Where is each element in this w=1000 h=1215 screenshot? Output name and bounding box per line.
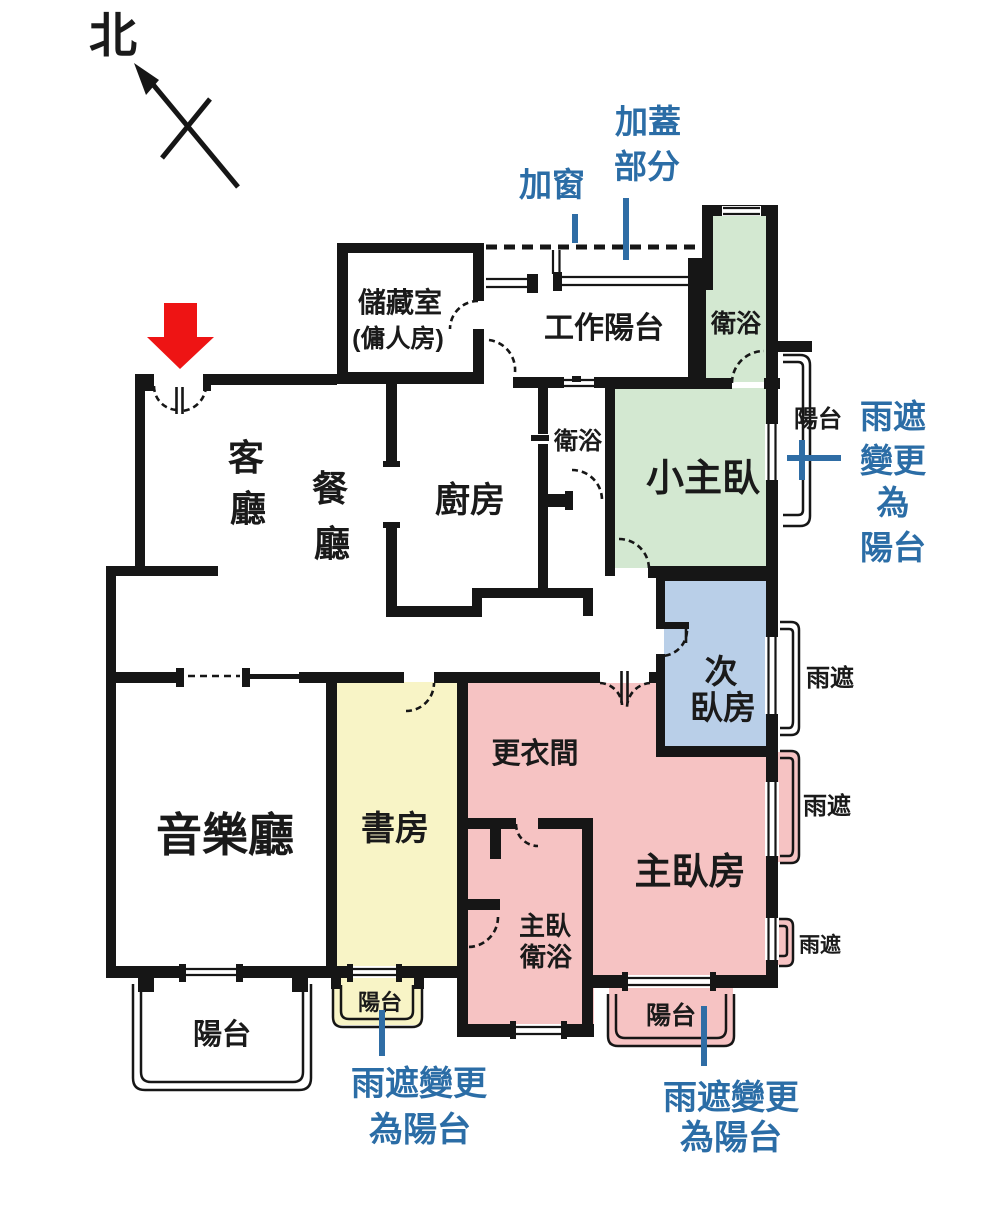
svg-text:陽台: 陽台 [860, 529, 926, 566]
svg-text:陽台: 陽台 [193, 1017, 251, 1051]
svg-text:雨遮: 雨遮 [803, 792, 851, 820]
svg-text:儲藏室: 儲藏室 [358, 286, 442, 318]
svg-text:臥房: 臥房 [690, 689, 756, 726]
svg-text:衛浴: 衛浴 [553, 427, 603, 455]
svg-text:書房: 書房 [361, 810, 429, 848]
svg-text:雨遮: 雨遮 [860, 398, 926, 435]
svg-text:部分: 部分 [614, 148, 680, 185]
svg-text:加蓋: 加蓋 [615, 103, 681, 140]
svg-text:加窗: 加窗 [519, 166, 585, 203]
svg-text:雨遮: 雨遮 [806, 664, 854, 692]
svg-text:次: 次 [705, 653, 738, 690]
svg-text:廳: 廳 [230, 488, 266, 529]
svg-text:衛浴: 衛浴 [710, 310, 762, 338]
svg-text:(傭人房): (傭人房) [352, 324, 444, 353]
svg-text:雨遮變更: 雨遮變更 [351, 1064, 488, 1103]
svg-text:衛浴: 衛浴 [519, 942, 573, 972]
svg-text:陽台: 陽台 [794, 405, 842, 433]
svg-text:餐: 餐 [312, 468, 348, 509]
svg-text:主臥: 主臥 [519, 911, 572, 941]
svg-text:北: 北 [89, 10, 137, 63]
svg-text:為: 為 [877, 484, 910, 521]
svg-text:音樂廳: 音樂廳 [156, 809, 294, 861]
svg-text:為陽台: 為陽台 [369, 1111, 471, 1149]
svg-text:陽台: 陽台 [646, 1001, 696, 1030]
svg-text:變更: 變更 [860, 442, 927, 479]
svg-text:工作陽台: 工作陽台 [544, 311, 664, 345]
svg-text:小主臥: 小主臥 [646, 458, 760, 500]
svg-text:廚房: 廚房 [435, 480, 505, 520]
svg-text:廳: 廳 [314, 523, 350, 564]
svg-text:雨遮: 雨遮 [799, 933, 841, 957]
svg-text:主臥房: 主臥房 [635, 851, 746, 892]
svg-text:客: 客 [228, 437, 264, 478]
svg-text:更衣間: 更衣間 [491, 737, 578, 770]
svg-text:雨遮變更: 雨遮變更 [663, 1078, 800, 1117]
svg-text:為陽台: 為陽台 [680, 1119, 782, 1157]
